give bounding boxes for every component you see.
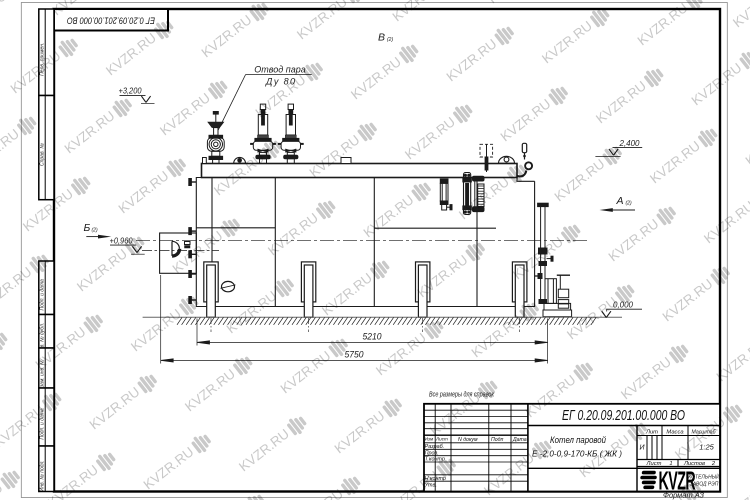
svg-text:Лит: Лит [645,430,658,436]
svg-text:ЕГ 0.20.09.201.00.000 ВО: ЕГ 0.20.09.201.00.000 ВО [562,408,685,424]
svg-text:Листов: Листов [683,461,705,467]
svg-text:Пров.: Пров. [425,450,439,456]
svg-text:2,400: 2,400 [619,138,640,148]
svg-text:Масса: Масса [666,430,684,436]
svg-text:А: А [616,195,624,207]
svg-text:Подп: Подп [491,437,504,443]
svg-text:Изм: Изм [425,437,434,442]
svg-text:(2): (2) [626,201,632,207]
svg-text:(2): (2) [92,228,98,234]
svg-text:В: В [378,31,385,43]
svg-text:1: 1 [669,461,672,467]
svg-text:Разраб.: Разраб. [425,444,445,450]
svg-text:N докум: N докум [458,437,478,443]
svg-text:Лист: Лист [646,461,662,467]
svg-text:КОТЕЛЬНЫЙ: КОТЕЛЬНЫЙ [688,473,720,481]
svg-text:5210: 5210 [363,332,382,342]
svg-text:Котел паровой: Котел паровой [550,435,606,445]
svg-text:5750: 5750 [345,350,364,360]
svg-text:Инв. № подл.: Инв. № подл. [40,460,46,491]
svg-text:ЕГ 0.20.09.201.00.000 ВО: ЕГ 0.20.09.201.00.000 ВО [67,16,155,26]
svg-text:Дата: Дата [512,437,527,443]
svg-text:Б: Б [84,222,91,234]
svg-text:Подп. и дата: Подп. и дата [40,279,46,311]
svg-text:(2): (2) [387,37,393,43]
svg-text:+3,200: +3,200 [119,85,142,95]
svg-text:Справ. №: Справ. № [40,143,46,166]
